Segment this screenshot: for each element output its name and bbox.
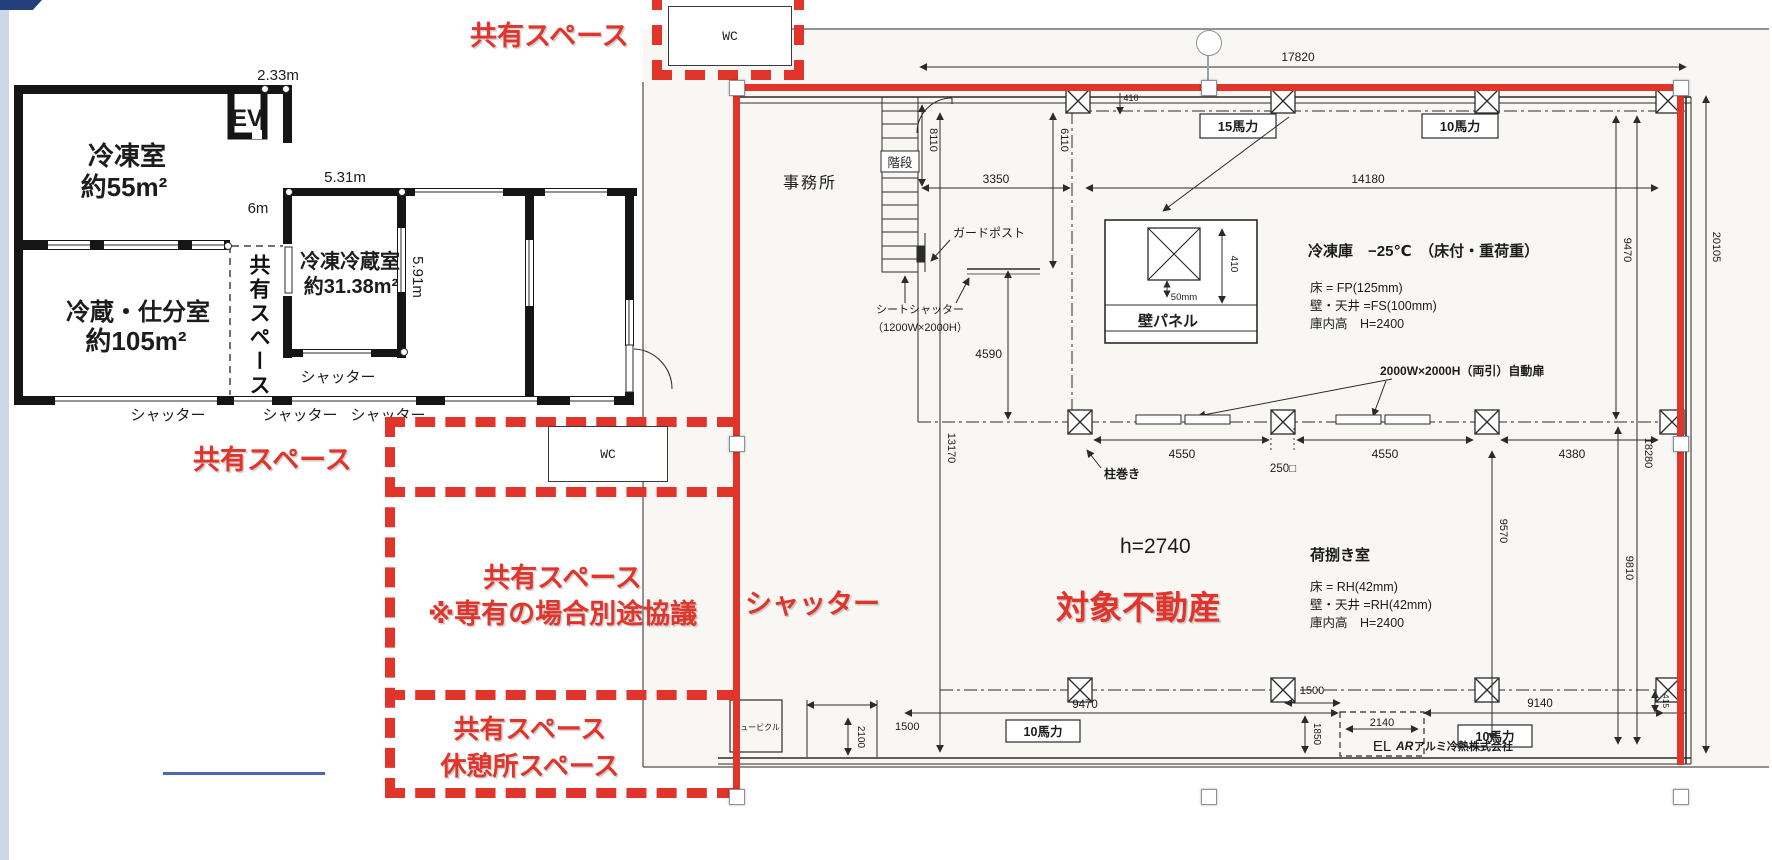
- room-chilled-name: 冷蔵・仕分室: [66, 298, 210, 326]
- room-fc-name: 冷凍冷蔵室: [300, 249, 400, 273]
- shared-top-label: 共有スペース: [470, 20, 629, 54]
- dim-410-panel: 410: [1228, 256, 1239, 273]
- office-label: 事務所: [783, 174, 837, 192]
- hp10-top-label: 10馬力: [1440, 119, 1480, 134]
- room-freezer-area: 約55m²: [81, 172, 168, 202]
- panel-50mm: 50mm: [1171, 292, 1197, 303]
- wall-panel-label: 壁パネル: [1138, 312, 1198, 330]
- loading-wall: 壁・天井 =RH(42mm): [1310, 597, 1432, 612]
- corner-flag: [0, 0, 42, 10]
- stairs-label: 階段: [887, 155, 912, 170]
- dim-9140: 9140: [1527, 698, 1553, 710]
- dim-13170: 13170: [945, 433, 957, 464]
- shared-bottom-line1: 共有スペース: [380, 711, 680, 748]
- shared-bottom-label: 共有スペース 休憩所スペース: [380, 711, 680, 785]
- hp10-bl-label: 10馬力: [1024, 724, 1063, 739]
- shared-dashed-mid2: [385, 690, 737, 700]
- dim-4550b: 4550: [1372, 447, 1399, 461]
- guard-post-label: ガードポスト: [953, 226, 1025, 240]
- freezer-wall: 壁・天井 =FS(100mm): [1310, 298, 1437, 313]
- dim-1850: 1850: [1311, 723, 1322, 746]
- shared-main-line1: 共有スペース: [390, 560, 735, 596]
- dim-410-top: 410: [1123, 93, 1138, 103]
- dim-2-33m: 2.33m: [257, 67, 299, 84]
- wc-lower-box: WC: [548, 426, 668, 482]
- column-wrap-label: 柱巻き: [1104, 466, 1140, 481]
- dim-20105: 20105: [1710, 232, 1722, 263]
- handle-bottom-mid[interactable]: [1201, 789, 1217, 805]
- dim-9570: 9570: [1497, 519, 1509, 543]
- handle-bottom-right[interactable]: [1673, 789, 1689, 805]
- floorplan-page: 2.33m 5.31m 6m 5.91m 冷凍室 約55m² 冷蔵・仕分室 約1…: [0, 0, 1772, 860]
- room-chilled-area: 約105m²: [85, 326, 186, 356]
- shutter-inner: シャッター: [300, 369, 375, 386]
- dim-250: 250□: [1270, 463, 1296, 475]
- sheet-shutter-label1: シートシャッター: [876, 303, 964, 316]
- company-mark: AR: [1395, 739, 1414, 753]
- loading-floor: 床 = RH(42mm): [1310, 580, 1398, 594]
- dim-18280: 18280: [1642, 438, 1654, 469]
- shared-left-label: 共有スペース: [193, 444, 352, 478]
- shared-main-label: 共有スペース ※専有の場合別途協議: [390, 560, 735, 632]
- handle-top-mid[interactable]: [1201, 80, 1217, 96]
- wc-lower-label: WC: [600, 447, 616, 462]
- shutter-1: シャッター: [130, 407, 205, 424]
- corridor-label: 共有スペース: [243, 254, 273, 398]
- shared-main-line2: ※専有の場合別途協議: [390, 596, 735, 632]
- dim-6110: 6110: [1058, 128, 1070, 152]
- ev-label: EV: [231, 105, 263, 132]
- red-boundary-right[interactable]: [1677, 84, 1684, 765]
- dim-5-31m: 5.31m: [324, 169, 366, 186]
- handle-mid-left[interactable]: [729, 436, 745, 452]
- handle-top-left[interactable]: [729, 80, 745, 96]
- freezer-floor: 床 = FP(125mm): [1310, 281, 1403, 295]
- loading-height: 庫内高 H=2400: [1310, 615, 1404, 630]
- dim-9810: 9810: [1623, 556, 1635, 580]
- dim-6m: 6m: [248, 200, 269, 217]
- handle-mid-right[interactable]: [1673, 436, 1689, 452]
- right-plan: 階段 事務所 15馬力 10馬力 10: [640, 25, 1772, 770]
- loading-title: 荷捌き室: [1310, 546, 1370, 564]
- dim-1500b: 1500: [1300, 685, 1324, 697]
- dim-14180: 14180: [1351, 172, 1385, 186]
- left-plan: 2.33m 5.31m 6m 5.91m 冷凍室 約55m² 冷蔵・仕分室 約1…: [0, 40, 700, 470]
- wc-top-box: WC: [668, 6, 792, 66]
- dim-9470r: 9470: [1621, 238, 1633, 262]
- room-freezer-name: 冷凍室: [88, 141, 166, 171]
- shared-dashed-bottom: [385, 788, 737, 798]
- dim-1500a: 1500: [895, 721, 919, 733]
- shared-bottom-line2: 休憩所スペース: [380, 748, 680, 785]
- room-fc-area: 約31.38m²: [304, 274, 399, 298]
- shared-dashed-mid1: [385, 487, 737, 497]
- dim-17820: 17820: [1281, 50, 1315, 64]
- el-label: EL: [1373, 738, 1391, 755]
- freezer-title: 冷凍庫 −25℃ （床付・重荷重）: [1308, 242, 1539, 260]
- target-property-label: 対象不動産: [1056, 587, 1221, 628]
- scan-paper: [643, 29, 1770, 768]
- company-name: アルミ冷熱株式会社: [1414, 739, 1513, 753]
- sheet-shutter-label2: （1200W×2000H）: [872, 321, 968, 334]
- freezer-height: 庫内高 H=2400: [1310, 316, 1404, 331]
- wc-top-label: WC: [722, 29, 738, 44]
- auto-door-label: 2000W×2000H（両引）自動扉: [1380, 363, 1544, 378]
- rotate-handle[interactable]: [1196, 30, 1222, 56]
- dim-5-91m: 5.91m: [409, 256, 426, 298]
- dim-2100: 2100: [855, 726, 866, 749]
- shutter-2: シャッター: [262, 407, 337, 424]
- blue-underline: [163, 772, 325, 775]
- handle-bottom-left[interactable]: [729, 789, 745, 805]
- rotate-handle-stem: [1207, 54, 1209, 82]
- hp15-label: 15馬力: [1218, 119, 1258, 134]
- dim-8110: 8110: [927, 128, 939, 152]
- ceiling-height: h=2740: [1120, 535, 1191, 558]
- dim-3350: 3350: [983, 172, 1010, 186]
- dim-415: 415: [1661, 694, 1671, 708]
- dim-9470b: 9470: [1072, 699, 1098, 711]
- dim-4550a: 4550: [1169, 447, 1196, 461]
- handle-top-right[interactable]: [1673, 80, 1689, 96]
- dim-2140: 2140: [1370, 717, 1394, 729]
- shutter-red-label: シャッター: [745, 588, 880, 622]
- dim-4590: 4590: [975, 347, 1002, 361]
- dim-4380: 4380: [1559, 447, 1586, 461]
